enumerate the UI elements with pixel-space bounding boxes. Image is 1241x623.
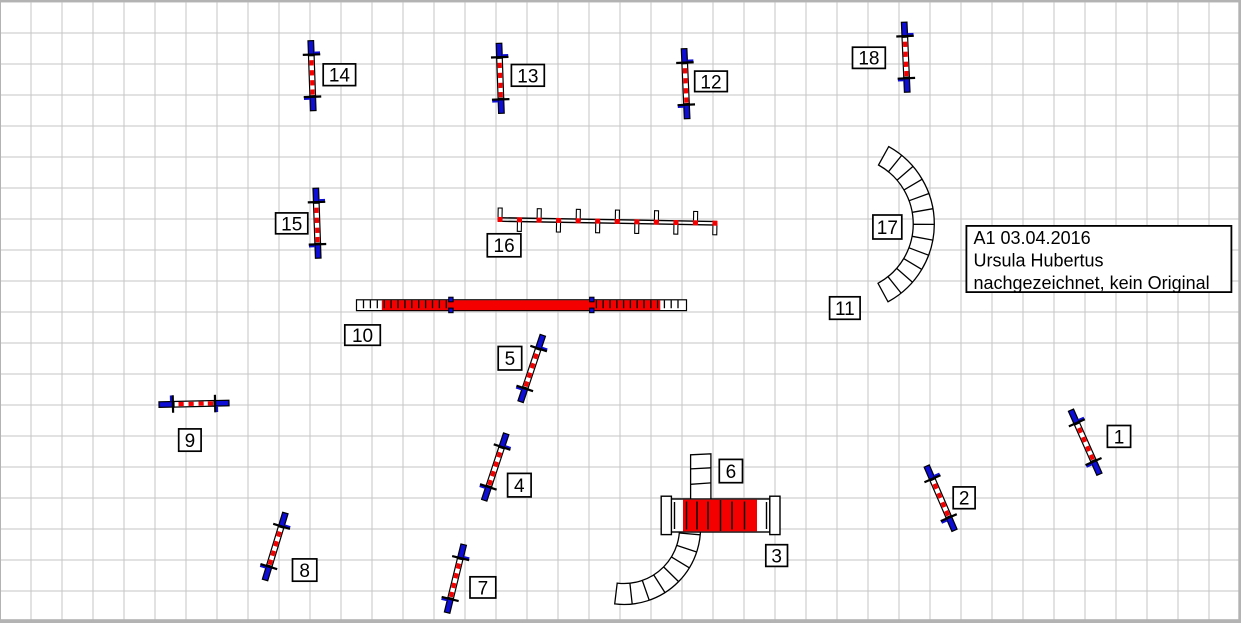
svg-text:16: 16 bbox=[494, 236, 515, 257]
svg-text:9: 9 bbox=[185, 431, 196, 452]
svg-text:Ursula Hubertus: Ursula Hubertus bbox=[974, 250, 1104, 270]
svg-text:4: 4 bbox=[514, 476, 525, 497]
svg-text:3: 3 bbox=[771, 546, 782, 567]
svg-text:2: 2 bbox=[959, 489, 970, 510]
svg-text:15: 15 bbox=[281, 214, 302, 235]
svg-text:13: 13 bbox=[517, 66, 538, 87]
svg-text:17: 17 bbox=[877, 218, 898, 239]
svg-text:7: 7 bbox=[478, 578, 489, 599]
svg-text:11: 11 bbox=[835, 299, 855, 320]
svg-text:10: 10 bbox=[352, 326, 373, 347]
svg-text:18: 18 bbox=[858, 49, 879, 70]
svg-text:nachgezeichnet, kein Original: nachgezeichnet, kein Original bbox=[974, 273, 1210, 293]
svg-text:A1 03.04.2016: A1 03.04.2016 bbox=[974, 228, 1091, 248]
svg-text:8: 8 bbox=[299, 561, 310, 582]
svg-text:1: 1 bbox=[1114, 427, 1125, 448]
svg-text:6: 6 bbox=[726, 462, 737, 483]
svg-text:14: 14 bbox=[329, 66, 351, 87]
svg-text:5: 5 bbox=[505, 349, 516, 370]
svg-text:12: 12 bbox=[700, 72, 721, 93]
